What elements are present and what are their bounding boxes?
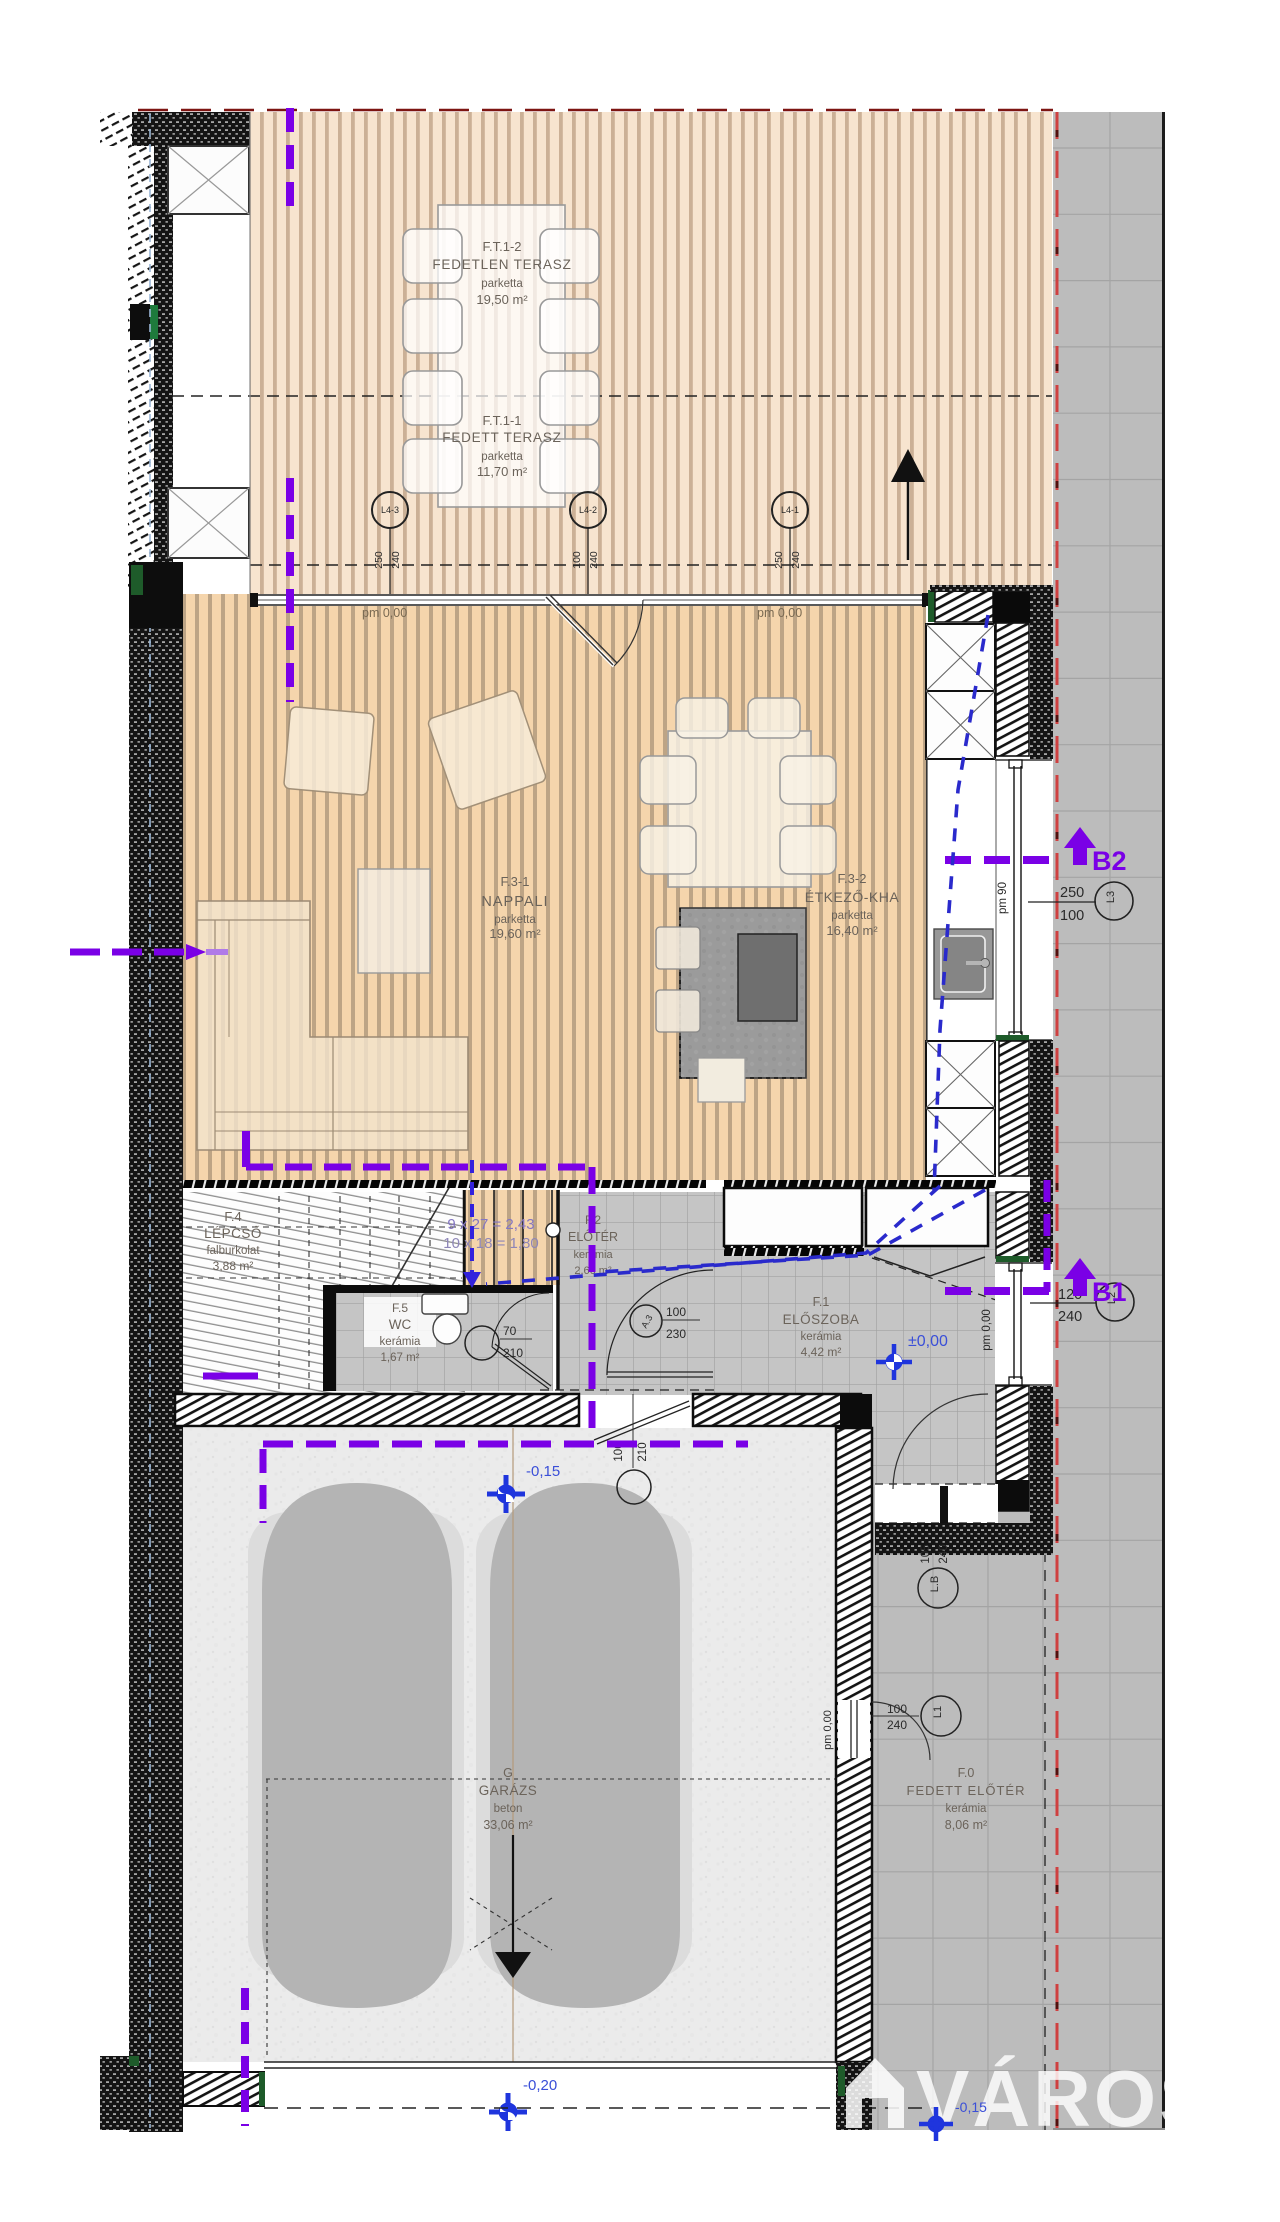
svg-text:parketta: parketta: [831, 910, 873, 922]
svg-text:B2: B2: [1092, 846, 1127, 876]
svg-text:70: 70: [503, 1324, 517, 1338]
svg-text:NAPPALI: NAPPALI: [481, 894, 548, 910]
svg-text:F.1: F.1: [813, 1295, 830, 1309]
svg-text:10 x 18 = 1,80: 10 x 18 = 1,80: [443, 1235, 539, 1252]
svg-text:240: 240: [938, 1544, 950, 1563]
svg-text:19,60 m²: 19,60 m²: [489, 926, 541, 941]
svg-text:pm 90: pm 90: [997, 882, 1009, 914]
svg-text:8,06 m²: 8,06 m²: [945, 1818, 987, 1832]
svg-text:pm 0,00: pm 0,00: [362, 606, 407, 620]
svg-text:L.B: L.B: [929, 1576, 941, 1593]
svg-text:33,06 m²: 33,06 m²: [483, 1818, 532, 1832]
svg-text:100: 100: [571, 551, 583, 569]
svg-text:250: 250: [773, 551, 785, 569]
svg-text:240: 240: [390, 551, 402, 569]
svg-text:parketta: parketta: [481, 451, 523, 463]
svg-text:G: G: [503, 1766, 513, 1780]
svg-text:9 x 27 = 2,43: 9 x 27 = 2,43: [447, 1216, 534, 1233]
svg-text:-0,15: -0,15: [526, 1463, 560, 1480]
svg-text:19,50 m²: 19,50 m²: [476, 292, 528, 307]
svg-text:100: 100: [666, 1305, 686, 1319]
svg-text:GARÁZS: GARÁZS: [479, 1783, 538, 1798]
svg-text:kerámia: kerámia: [801, 1331, 843, 1343]
svg-text:FEDETLEN TERASZ: FEDETLEN TERASZ: [432, 257, 571, 272]
svg-text:F.0: F.0: [958, 1766, 975, 1780]
svg-text:ELŐSZOBA: ELŐSZOBA: [783, 1312, 860, 1327]
svg-text:falburkolat: falburkolat: [206, 1245, 260, 1257]
svg-text:kerámia: kerámia: [380, 1336, 422, 1348]
svg-text:240: 240: [588, 551, 600, 569]
svg-text:ÉTKEZŐ-KHA: ÉTKEZŐ-KHA: [805, 889, 900, 905]
svg-text:11,70 m²: 11,70 m²: [477, 464, 528, 479]
svg-text:pm 0,00: pm 0,00: [822, 1710, 834, 1750]
svg-text:-0,20: -0,20: [523, 2077, 557, 2094]
svg-text:1,67 m²: 1,67 m²: [381, 1352, 420, 1364]
svg-text:parketta: parketta: [494, 914, 536, 926]
svg-text:230: 230: [666, 1327, 686, 1341]
svg-text:L4-3: L4-3: [381, 505, 399, 515]
svg-text:F.3-2: F.3-2: [838, 871, 867, 886]
svg-text:parketta: parketta: [481, 278, 523, 290]
svg-text:240: 240: [887, 1718, 907, 1732]
svg-text:pm 0,00: pm 0,00: [757, 606, 802, 620]
svg-text:L1: L1: [932, 1706, 944, 1718]
svg-text:F.4: F.4: [224, 1209, 241, 1224]
svg-text:F.5: F.5: [392, 1301, 408, 1315]
svg-text:B1: B1: [1092, 1277, 1127, 1307]
svg-text:beton: beton: [494, 1803, 523, 1815]
svg-text:L4-2: L4-2: [579, 505, 597, 515]
svg-text:-0,15: -0,15: [955, 2099, 987, 2115]
svg-text:4,42 m²: 4,42 m²: [801, 1345, 842, 1359]
svg-text:FEDETT ELŐTÉR: FEDETT ELŐTÉR: [907, 1783, 1026, 1798]
svg-text:FEDETT TERASZ: FEDETT TERASZ: [442, 430, 561, 445]
svg-text:240: 240: [790, 551, 802, 569]
svg-text:F.T.1-1: F.T.1-1: [482, 413, 521, 428]
svg-text:F.3-1: F.3-1: [501, 874, 530, 889]
svg-text:kerámia: kerámia: [946, 1803, 988, 1815]
svg-text:L4-1: L4-1: [781, 505, 799, 515]
svg-text:3,88 m²: 3,88 m²: [213, 1259, 254, 1273]
svg-text:100: 100: [887, 1702, 907, 1716]
svg-text:210: 210: [637, 1442, 649, 1461]
svg-text:250: 250: [1060, 885, 1084, 901]
svg-text:16,40 m²: 16,40 m²: [826, 923, 878, 938]
svg-text:LÉPCSŐ: LÉPCSŐ: [204, 1226, 262, 1241]
svg-text:100: 100: [1060, 908, 1084, 924]
svg-text:L3: L3: [1105, 891, 1117, 903]
svg-text:±0,00: ±0,00: [908, 1333, 948, 1350]
svg-text:WC: WC: [389, 1317, 412, 1332]
svg-text:pm 0,00: pm 0,00: [981, 1309, 993, 1351]
svg-text:F.T.1-2: F.T.1-2: [482, 239, 521, 254]
svg-text:240: 240: [1058, 1309, 1082, 1325]
svg-text:105: 105: [920, 1544, 932, 1563]
svg-text:250: 250: [373, 551, 385, 569]
